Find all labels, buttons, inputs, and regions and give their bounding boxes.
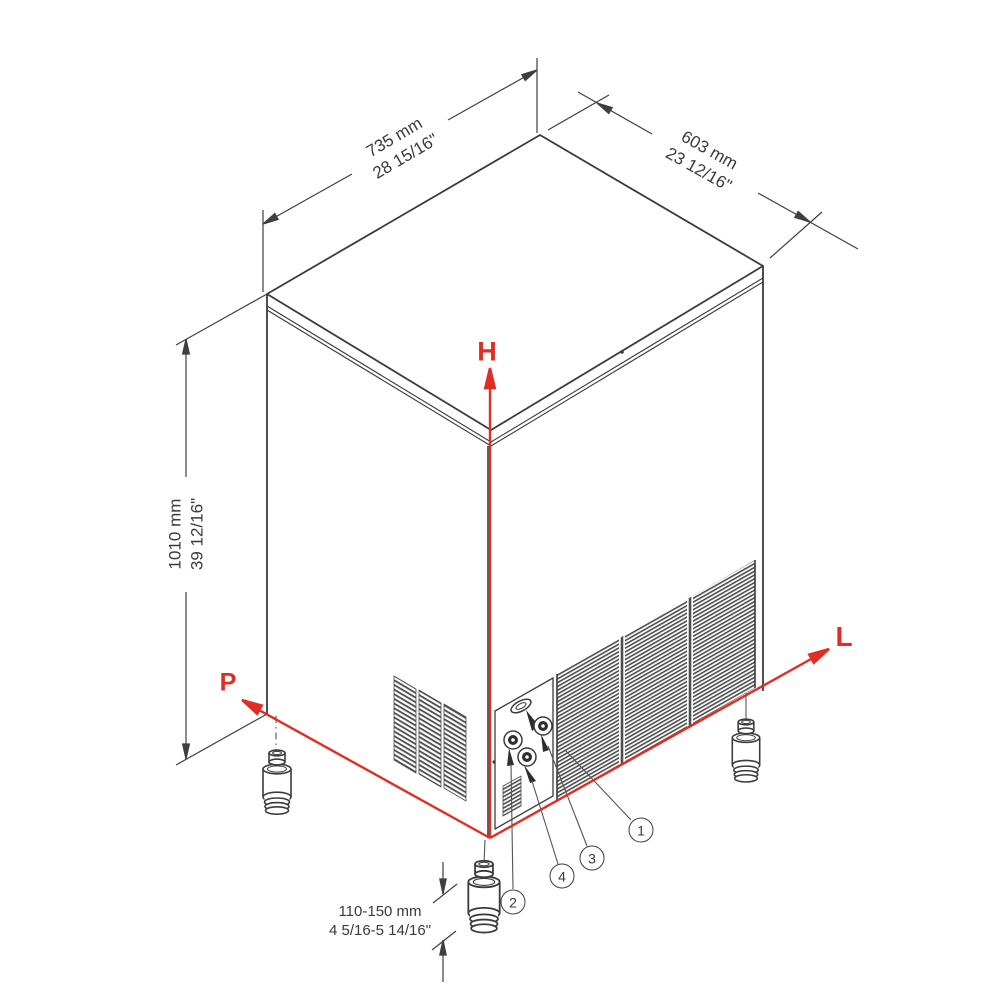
dimension-height-label: 1010 mm 39 12/16" [164, 498, 208, 570]
line-art [0, 0, 1000, 1000]
lid-screw-dot [620, 350, 624, 354]
right-leg [732, 719, 759, 782]
left-leg [263, 750, 291, 814]
panel-screw-dot [492, 760, 495, 763]
callout-3: 3 [580, 846, 605, 871]
dimension-height-inch: 39 12/16" [186, 498, 208, 570]
axis-p-arrowhead [242, 700, 262, 714]
callout-1: 1 [629, 818, 654, 843]
axis-l-arrowhead [809, 649, 829, 663]
ice-maker-dimension-diagram: 735 mm 28 15/16" 603 mm 23 12/16" 1010 m… [0, 0, 1000, 1000]
front-leg [468, 861, 499, 933]
dimension-feet [432, 862, 457, 982]
dimension-feet-inch: 4 5/16-5 14/16" [329, 921, 431, 940]
dimension-height-mm: 1010 mm [164, 498, 186, 570]
axis-l-label: L [835, 623, 852, 651]
axis-p-label: P [220, 671, 237, 696]
axis-h-label: H [477, 339, 497, 366]
dimension-feet-mm: 110-150 mm [329, 902, 431, 921]
dimension-feet-label: 110-150 mm 4 5/16-5 14/16" [329, 902, 431, 940]
callout-2: 2 [501, 890, 526, 915]
callout-4: 4 [550, 864, 575, 889]
